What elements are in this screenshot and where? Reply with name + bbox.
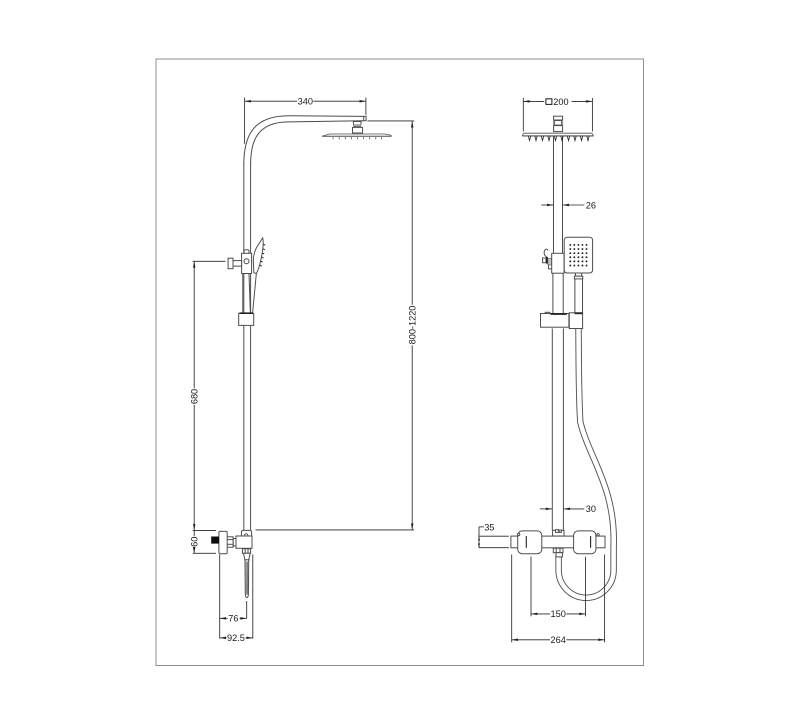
svg-text:30: 30 — [586, 504, 596, 514]
svg-text:76: 76 — [228, 614, 238, 624]
svg-text:200: 200 — [553, 97, 568, 107]
svg-text:340: 340 — [298, 97, 313, 107]
svg-text:800-1220: 800-1220 — [408, 306, 418, 345]
svg-text:264: 264 — [551, 635, 566, 645]
svg-text:150: 150 — [551, 609, 566, 619]
svg-text:60: 60 — [189, 537, 199, 547]
svg-text:35: 35 — [484, 522, 494, 532]
svg-text:26: 26 — [586, 200, 596, 210]
svg-text:680: 680 — [190, 389, 200, 404]
svg-text:92.5: 92.5 — [227, 633, 245, 643]
